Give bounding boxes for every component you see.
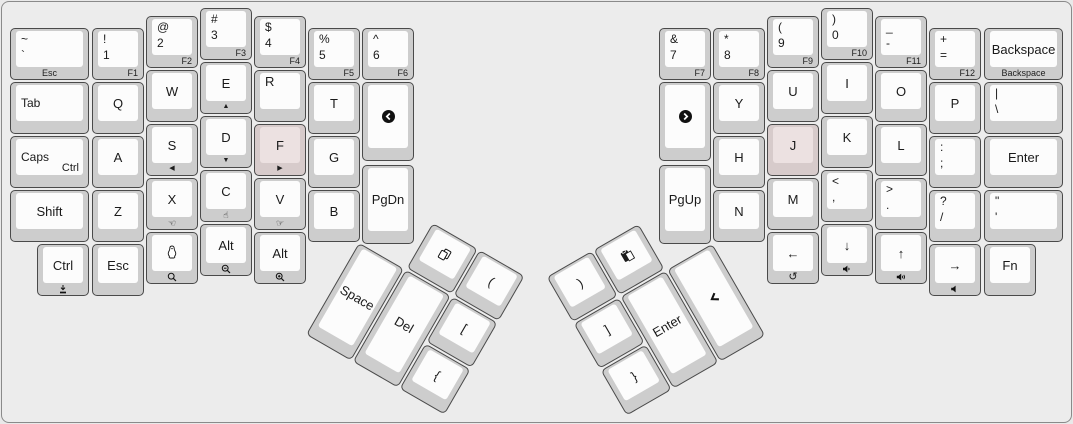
key-label-base: \ (995, 101, 998, 117)
key-label-shifted: * (724, 31, 731, 47)
keycap-top: Q (98, 85, 138, 121)
keycap-top: ^6 (368, 31, 408, 67)
key-front-face (985, 175, 1062, 187)
key-front-face (985, 283, 1035, 295)
key-5-f5[interactable]: %5F5 (308, 28, 360, 80)
key-label: ) (574, 275, 585, 290)
key-comma[interactable]: <, (821, 170, 873, 222)
keycap-top: )0 (827, 11, 867, 47)
key-front-face: ◀ (147, 163, 197, 175)
key-label-shifted: " (995, 193, 999, 209)
key-label: I (845, 76, 849, 91)
key-front-face (714, 121, 764, 133)
key-front-face (38, 283, 88, 295)
key-front-face: Esc (11, 67, 88, 79)
keycap-top: :; (935, 139, 975, 175)
key-label: Tab (21, 85, 40, 121)
keycap-top (152, 235, 192, 271)
key-1-f1[interactable]: !1F1 (92, 28, 144, 80)
key-label: W (166, 84, 178, 99)
penguin-icon (165, 245, 179, 261)
key-front-face: ▼ (201, 155, 251, 167)
key-label-base: ` (21, 47, 28, 63)
keyboard-layout-canvas: (SpaceDel[{ )]Enter} ~`Esc!1F1@2F2#3F3$4… (0, 0, 1073, 424)
key-front-face: F1 (93, 67, 143, 79)
key-front-face (309, 121, 359, 133)
hand-left-icon: ☜ (168, 218, 176, 228)
key-back-circle[interactable] (362, 82, 414, 161)
keycap-top: _- (881, 19, 921, 55)
keycap-top: L (881, 127, 921, 163)
key-label-base: 1 (103, 47, 110, 63)
key-front-face (309, 175, 359, 187)
key-penguin[interactable] (146, 232, 198, 284)
key-front-face: F6 (363, 67, 413, 79)
volume-mute-icon (950, 284, 960, 294)
key-front-face (660, 148, 710, 160)
key-label: O (896, 84, 906, 99)
keycap-top: Alt (260, 235, 300, 271)
key-shift[interactable]: Shift (10, 190, 89, 242)
key-front-face: F4 (255, 55, 305, 67)
key-front-face (255, 109, 305, 121)
keycap-top: Fn (990, 247, 1030, 283)
key-front-label: F10 (851, 47, 867, 59)
key-front-label: F3 (235, 47, 246, 59)
key-label: G (329, 150, 339, 165)
keycap-top: %5 (314, 31, 354, 67)
key-label-base: 8 (724, 47, 731, 63)
key-front-face (11, 229, 88, 241)
key-p[interactable]: P (929, 82, 981, 134)
key-a[interactable]: A (92, 136, 144, 188)
keycap-top: <, (827, 173, 867, 209)
key-labels: ?/ (940, 193, 947, 225)
key-labels: ~` (21, 31, 28, 63)
key-front-face: F9 (768, 55, 818, 67)
keycap-top: S (152, 127, 192, 163)
key-label-base: - (886, 35, 893, 51)
key-alt-1[interactable]: Alt (200, 224, 252, 276)
phone-icon (705, 289, 723, 307)
key-label-base: = (940, 47, 947, 63)
key-front-face (876, 217, 926, 229)
keycap-top: H (719, 139, 759, 175)
key-arrow-left[interactable]: ←↺ (767, 232, 819, 284)
keycap-top: Enter (990, 139, 1057, 175)
key-x[interactable]: X☜ (146, 178, 198, 230)
keycap-top: I (827, 65, 867, 101)
key-8-f8[interactable]: *8F8 (713, 28, 765, 80)
key-front-face: F12 (930, 67, 980, 79)
keycap-top: R (260, 73, 300, 109)
key-labels: ^6 (373, 31, 380, 63)
key-fn[interactable]: Fn (984, 244, 1036, 296)
key-label: U (788, 84, 797, 99)
key-label: ] (601, 322, 612, 337)
key-label: B (330, 204, 339, 219)
key-2-f2[interactable]: @2F2 (146, 16, 198, 68)
key-front-label: F1 (127, 67, 138, 79)
key-i[interactable]: I (821, 62, 873, 114)
key-label: { (432, 367, 443, 382)
key-caps-ctrl[interactable]: CapsCtrl (10, 136, 89, 188)
keycap-top: !1 (98, 31, 138, 67)
key-label: Alt (272, 246, 287, 261)
key-label: Caps (21, 139, 49, 175)
key-9-f9[interactable]: (9F9 (767, 16, 819, 68)
key-pgup[interactable]: PgUp (659, 165, 711, 244)
keycap-top: &7 (665, 31, 705, 67)
key-label: Ctrl (53, 258, 73, 273)
keycap-top: Y (719, 85, 759, 121)
key-label: ↓ (844, 238, 851, 253)
key-label: F (276, 138, 284, 153)
search-plus-icon (275, 272, 285, 282)
keycap-top: A (98, 139, 138, 175)
key-front-face (822, 263, 872, 275)
key-label: Y (735, 96, 744, 111)
key-front-label: F6 (397, 67, 408, 79)
key-label-base: 9 (778, 35, 785, 51)
volume-down-icon (842, 264, 852, 274)
key-front-face (768, 217, 818, 229)
key-labels: _- (886, 19, 893, 51)
key-enter-right[interactable]: Enter (984, 136, 1063, 188)
key-label: E (222, 76, 231, 91)
key-label: D (221, 130, 230, 145)
key-r[interactable]: R (254, 70, 306, 122)
key-front-face (822, 101, 872, 113)
key-backspace[interactable]: BackspaceBackspace (984, 28, 1063, 80)
keycap-top: E (206, 65, 246, 101)
keycap-top: PgUp (665, 168, 705, 231)
key-alt-2[interactable]: Alt (254, 232, 306, 284)
key-front-face: ▶ (255, 163, 305, 175)
key-front-face: F11 (876, 55, 926, 67)
keycap-top: G (314, 139, 354, 175)
triangle-up-icon: ▲ (223, 102, 230, 112)
key-4-f4[interactable]: $4F4 (254, 16, 306, 68)
key-front-face (93, 121, 143, 133)
key-label: } (628, 368, 639, 383)
key-l[interactable]: L (875, 124, 927, 176)
key-label-base: 0 (832, 27, 839, 43)
key-front-face: F3 (201, 47, 251, 59)
download-icon (58, 284, 68, 294)
key-front-label: F2 (181, 55, 192, 67)
key-n-key[interactable]: N (713, 190, 765, 242)
keycap-top: Alt (206, 227, 246, 263)
key-labels: $4 (265, 19, 272, 51)
key-7-f7[interactable]: &7F7 (659, 28, 711, 80)
key-label-shifted: : (940, 139, 943, 155)
key-front-face (876, 163, 926, 175)
paste-icon (618, 246, 636, 264)
key-label: Shift (36, 204, 62, 219)
key-front-face: ☞ (255, 217, 305, 229)
keycap-top: CapsCtrl (16, 139, 83, 175)
key-label: PgDn (372, 192, 405, 207)
key-front-face (147, 109, 197, 121)
key-front-label: Esc (42, 67, 57, 79)
key-label-base: , (832, 189, 839, 205)
key-label-shifted: & (670, 31, 678, 47)
key-front-face (93, 175, 143, 187)
keycap-top: M (773, 181, 813, 217)
key-h[interactable]: H (713, 136, 765, 188)
key-front-face (714, 229, 764, 241)
key-labels: @2 (157, 19, 169, 51)
hand-up-icon: ☝ (223, 210, 228, 220)
copy-icon (436, 245, 454, 263)
keycap-top: Z (98, 193, 138, 229)
key-label-base: / (940, 209, 947, 225)
keycap-top: Backspace (990, 31, 1057, 67)
key-t[interactable]: T (308, 82, 360, 134)
key-front-face (93, 229, 143, 241)
key-front-face (930, 121, 980, 133)
keycap-top (665, 85, 705, 148)
key-v[interactable]: V☞ (254, 178, 306, 230)
key-3-f3[interactable]: #3F3 (200, 8, 252, 60)
key-label-base: 4 (265, 35, 272, 51)
key-label-base: 2 (157, 35, 169, 51)
key-label-shifted: % (319, 31, 330, 47)
keycap-top: #3 (206, 11, 246, 47)
key-labels: %5 (319, 31, 330, 63)
volume-up-icon (896, 272, 906, 282)
key-front-face (201, 263, 251, 275)
key-label-shifted: $ (265, 19, 272, 35)
keycap-top: X (152, 181, 192, 217)
key-label: PgUp (669, 192, 702, 207)
key-label-shifted: | (995, 85, 998, 101)
key-labels: #3 (211, 11, 218, 43)
key-label: ( (486, 274, 497, 289)
key-labels: "' (995, 193, 999, 225)
key-s[interactable]: S◀ (146, 124, 198, 176)
key-0-f10[interactable]: )0F10 (821, 8, 873, 60)
key-front-face (93, 283, 143, 295)
key-label-shifted: ! (103, 31, 110, 47)
key-o[interactable]: O (875, 70, 927, 122)
key-label-shifted: ^ (373, 31, 380, 47)
key-labels: *8 (724, 31, 731, 63)
key-front-face: F8 (714, 67, 764, 79)
key-front-face (930, 175, 980, 187)
key-colon-semicolon[interactable]: :; (929, 136, 981, 188)
key-labels: )0 (832, 11, 839, 43)
key-label: L (897, 138, 904, 153)
key-label: H (734, 150, 743, 165)
key-labels: :; (940, 139, 943, 171)
triangle-left-icon: ◀ (169, 164, 174, 174)
key-label-shifted: > (886, 181, 893, 197)
key-label-shifted: ( (778, 19, 785, 35)
key-front-label: F7 (694, 67, 705, 79)
key-front-face (768, 163, 818, 175)
key-label-base: ' (995, 209, 999, 225)
key-front-face: F2 (147, 55, 197, 67)
key-f[interactable]: F▶ (254, 124, 306, 176)
key-front-label: F8 (748, 67, 759, 79)
key-label-shifted: ) (832, 11, 839, 27)
key-slash[interactable]: ?/ (929, 190, 981, 242)
keycap-top: K (827, 119, 867, 155)
key-front-face (255, 271, 305, 283)
key-pipe-backslash[interactable]: |\ (984, 82, 1063, 134)
key-j[interactable]: J (767, 124, 819, 176)
key-k[interactable]: K (821, 116, 873, 168)
key-dash-f11[interactable]: _-F11 (875, 16, 927, 68)
key-front-face (930, 283, 980, 295)
key-label: T (330, 96, 338, 111)
keycap-top: O (881, 73, 921, 109)
key-front-label: Backspace (1001, 67, 1045, 79)
key-q[interactable]: Q (92, 82, 144, 134)
keycap-top: → (935, 247, 975, 283)
key-label-base: 7 (670, 47, 678, 63)
key-label-base: . (886, 197, 893, 213)
key-fwd-circle[interactable] (659, 82, 711, 161)
key-front-face (660, 231, 710, 243)
keycap-top: ?/ (935, 193, 975, 229)
key-front-face (11, 121, 88, 133)
key-front-label: F11 (906, 55, 921, 67)
key-front-face (768, 109, 818, 121)
key-label: C (221, 184, 230, 199)
key-u[interactable]: U (767, 70, 819, 122)
key-label: J (790, 138, 797, 153)
key-period[interactable]: >. (875, 178, 927, 230)
key-front-face: ▲ (201, 101, 251, 113)
key-label: Esc (107, 258, 129, 273)
key-labels: += (940, 31, 947, 63)
key-front-face (930, 229, 980, 241)
key-front-face (876, 271, 926, 283)
triangle-right-icon: ▶ (277, 164, 282, 174)
key-esc-bottom[interactable]: Esc (92, 244, 144, 296)
key-front-face (363, 148, 413, 160)
key-label: S (168, 138, 177, 153)
keycap-top: PgDn (368, 168, 408, 231)
keycap-top: @2 (152, 19, 192, 55)
key-b[interactable]: B (308, 190, 360, 242)
keycap-top: J (773, 127, 813, 163)
keycap-top: ~` (16, 31, 83, 67)
key-front-label: F12 (959, 67, 975, 79)
keycap-top: ↓ (827, 227, 867, 263)
key-pgdn[interactable]: PgDn (362, 165, 414, 244)
triangle-down-icon: ▼ (223, 156, 230, 166)
keycap-top: ← (773, 235, 813, 271)
key-front-face: F10 (822, 47, 872, 59)
key-label: K (843, 130, 852, 145)
key-labels: !1 (103, 31, 110, 63)
keycap-top: V (260, 181, 300, 217)
key-front-face: F7 (660, 67, 710, 79)
key-equals-f12[interactable]: +=F12 (929, 28, 981, 80)
keycap-top: D (206, 119, 246, 155)
key-g[interactable]: G (308, 136, 360, 188)
key-front-face (876, 109, 926, 121)
search-icon (167, 272, 177, 282)
keycap-top: ↑ (881, 235, 921, 271)
key-grave-esc[interactable]: ~`Esc (10, 28, 89, 80)
key-label: Enter (1008, 150, 1039, 165)
keycap-top: U (773, 73, 813, 109)
key-label: R (265, 74, 274, 89)
key-front-face (985, 229, 1062, 241)
key-z[interactable]: Z (92, 190, 144, 242)
key-y[interactable]: Y (713, 82, 765, 134)
keycap-top: Ctrl (43, 247, 83, 283)
key-arrow-down[interactable]: ↓ (821, 224, 873, 276)
key-m[interactable]: M (767, 178, 819, 230)
key-e[interactable]: E▲ (200, 62, 252, 114)
key-ctrl-bottom[interactable]: Ctrl (37, 244, 89, 296)
keycap-top: *8 (719, 31, 759, 67)
keycap-top: F (260, 127, 300, 163)
keycap-top: Shift (16, 193, 83, 229)
key-front-label: F9 (802, 55, 813, 67)
key-label: Alt (218, 238, 233, 253)
key-front-face (822, 209, 872, 221)
key-d[interactable]: D▼ (200, 116, 252, 168)
undo-icon: ↺ (788, 272, 797, 282)
key-labels: <, (832, 173, 839, 205)
key-label: ← (787, 246, 800, 261)
key-front-face (822, 155, 872, 167)
key-label-base: 3 (211, 27, 218, 43)
keycap-top: Tab (16, 85, 83, 121)
search-minus-icon (221, 264, 231, 274)
key-tab[interactable]: Tab (10, 82, 89, 134)
key-arrow-right[interactable]: → (929, 244, 981, 296)
key-front-face: ↺ (768, 271, 818, 283)
key-w[interactable]: W (146, 70, 198, 122)
key-front-face: F5 (309, 67, 359, 79)
key-front-face (363, 231, 413, 243)
key-label: Del (392, 313, 416, 336)
key-label: X (168, 192, 177, 207)
key-label-shifted: ? (940, 193, 947, 209)
key-c[interactable]: C☝ (200, 170, 252, 222)
hand-right-icon: ☞ (276, 218, 284, 228)
key-labels: >. (886, 181, 893, 213)
keycap-top: "' (990, 193, 1057, 229)
key-label: Fn (1002, 258, 1017, 273)
key-label: Z (114, 204, 122, 219)
key-label: P (951, 96, 960, 111)
keycap-top: T (314, 85, 354, 121)
key-label: Q (113, 96, 123, 111)
key-sublabel: Ctrl (62, 162, 79, 174)
keycap-top: Esc (98, 247, 138, 283)
keycap-top: $4 (260, 19, 300, 55)
key-front-face (714, 175, 764, 187)
key-quote[interactable]: "' (984, 190, 1063, 242)
key-arrow-up[interactable]: ↑ (875, 232, 927, 284)
key-label: A (114, 150, 123, 165)
key-label-base: 5 (319, 47, 330, 63)
key-6-f6[interactable]: ^6F6 (362, 28, 414, 80)
key-label-base: ; (940, 155, 943, 171)
key-front-face: ☜ (147, 217, 197, 229)
keycap-top: (9 (773, 19, 813, 55)
key-label-shifted: @ (157, 19, 169, 35)
